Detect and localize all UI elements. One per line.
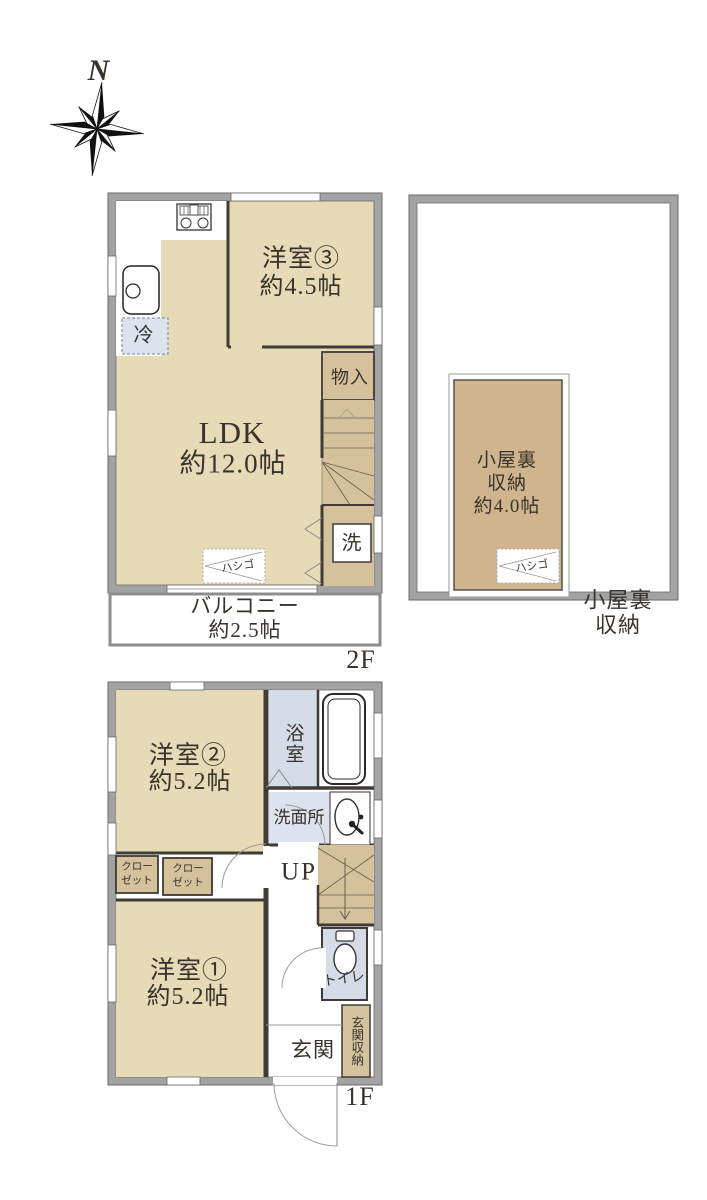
room2-name: 洋室② xyxy=(149,743,227,772)
plan-attic xyxy=(409,195,678,600)
ldk-name: LDK xyxy=(199,415,266,451)
stairs-1f xyxy=(318,845,374,925)
floor-label-1f: 1F xyxy=(345,1082,374,1112)
entrance-label: 玄関 xyxy=(291,1038,335,1062)
washroom-label: 洗面所 xyxy=(274,808,325,828)
stairs-2f xyxy=(322,400,374,505)
compass-north-label: N xyxy=(88,54,111,89)
attic-storage-name-2: 収納 xyxy=(487,473,527,495)
attic-caption: 小屋裏収納 xyxy=(574,588,663,639)
room1-name: 洋室① xyxy=(150,958,228,987)
attic-storage-size: 約4.0帖 xyxy=(474,496,541,518)
washbasin-icon xyxy=(330,792,370,845)
kitchen-sink-icon xyxy=(123,266,159,314)
stove-icon xyxy=(177,204,211,230)
laundry-label: 洗 xyxy=(342,533,363,556)
floorplan-canvas: N 洋室③ 約4.5帖 物入 LDK 約12.0帖 洗 冷 ハシゴ バルコニー … xyxy=(0,0,707,1200)
balcony-name: バルコニー xyxy=(190,594,300,618)
room2-size: 約5.2帖 xyxy=(149,769,232,797)
door-arc-entrance xyxy=(274,1083,337,1146)
room3-name: 洋室③ xyxy=(262,246,340,275)
compass-rose-icon xyxy=(45,77,148,180)
door-gap-room2 xyxy=(263,846,270,888)
closet1-label: クロー ゼット xyxy=(121,860,153,887)
closet2-label: クロー ゼット xyxy=(172,862,204,889)
ldk-size: 約12.0帖 xyxy=(179,448,286,479)
fridge-label: 冷 xyxy=(134,325,155,348)
floor-label-2f: 2F xyxy=(346,645,375,675)
entrance-opening xyxy=(273,1077,337,1085)
toilet-tank-icon xyxy=(336,931,354,941)
stairs-up-label: UP xyxy=(281,859,317,888)
toilet-bowl-icon xyxy=(334,944,356,974)
attic-storage-name-1: 小屋裏 xyxy=(477,450,537,472)
storage-monoire-label: 物入 xyxy=(331,368,369,389)
balcony-size: 約2.5帖 xyxy=(208,618,281,642)
room3-size: 約4.5帖 xyxy=(260,274,343,302)
door-gap-room3 xyxy=(231,343,262,351)
bathtub-icon xyxy=(323,694,365,784)
entrance-storage-label: 玄関収納 xyxy=(350,1016,363,1066)
bathroom-label: 浴室 xyxy=(284,723,303,765)
door-gap-washroom xyxy=(278,842,319,848)
room1-size: 約5.2帖 xyxy=(147,984,230,1012)
